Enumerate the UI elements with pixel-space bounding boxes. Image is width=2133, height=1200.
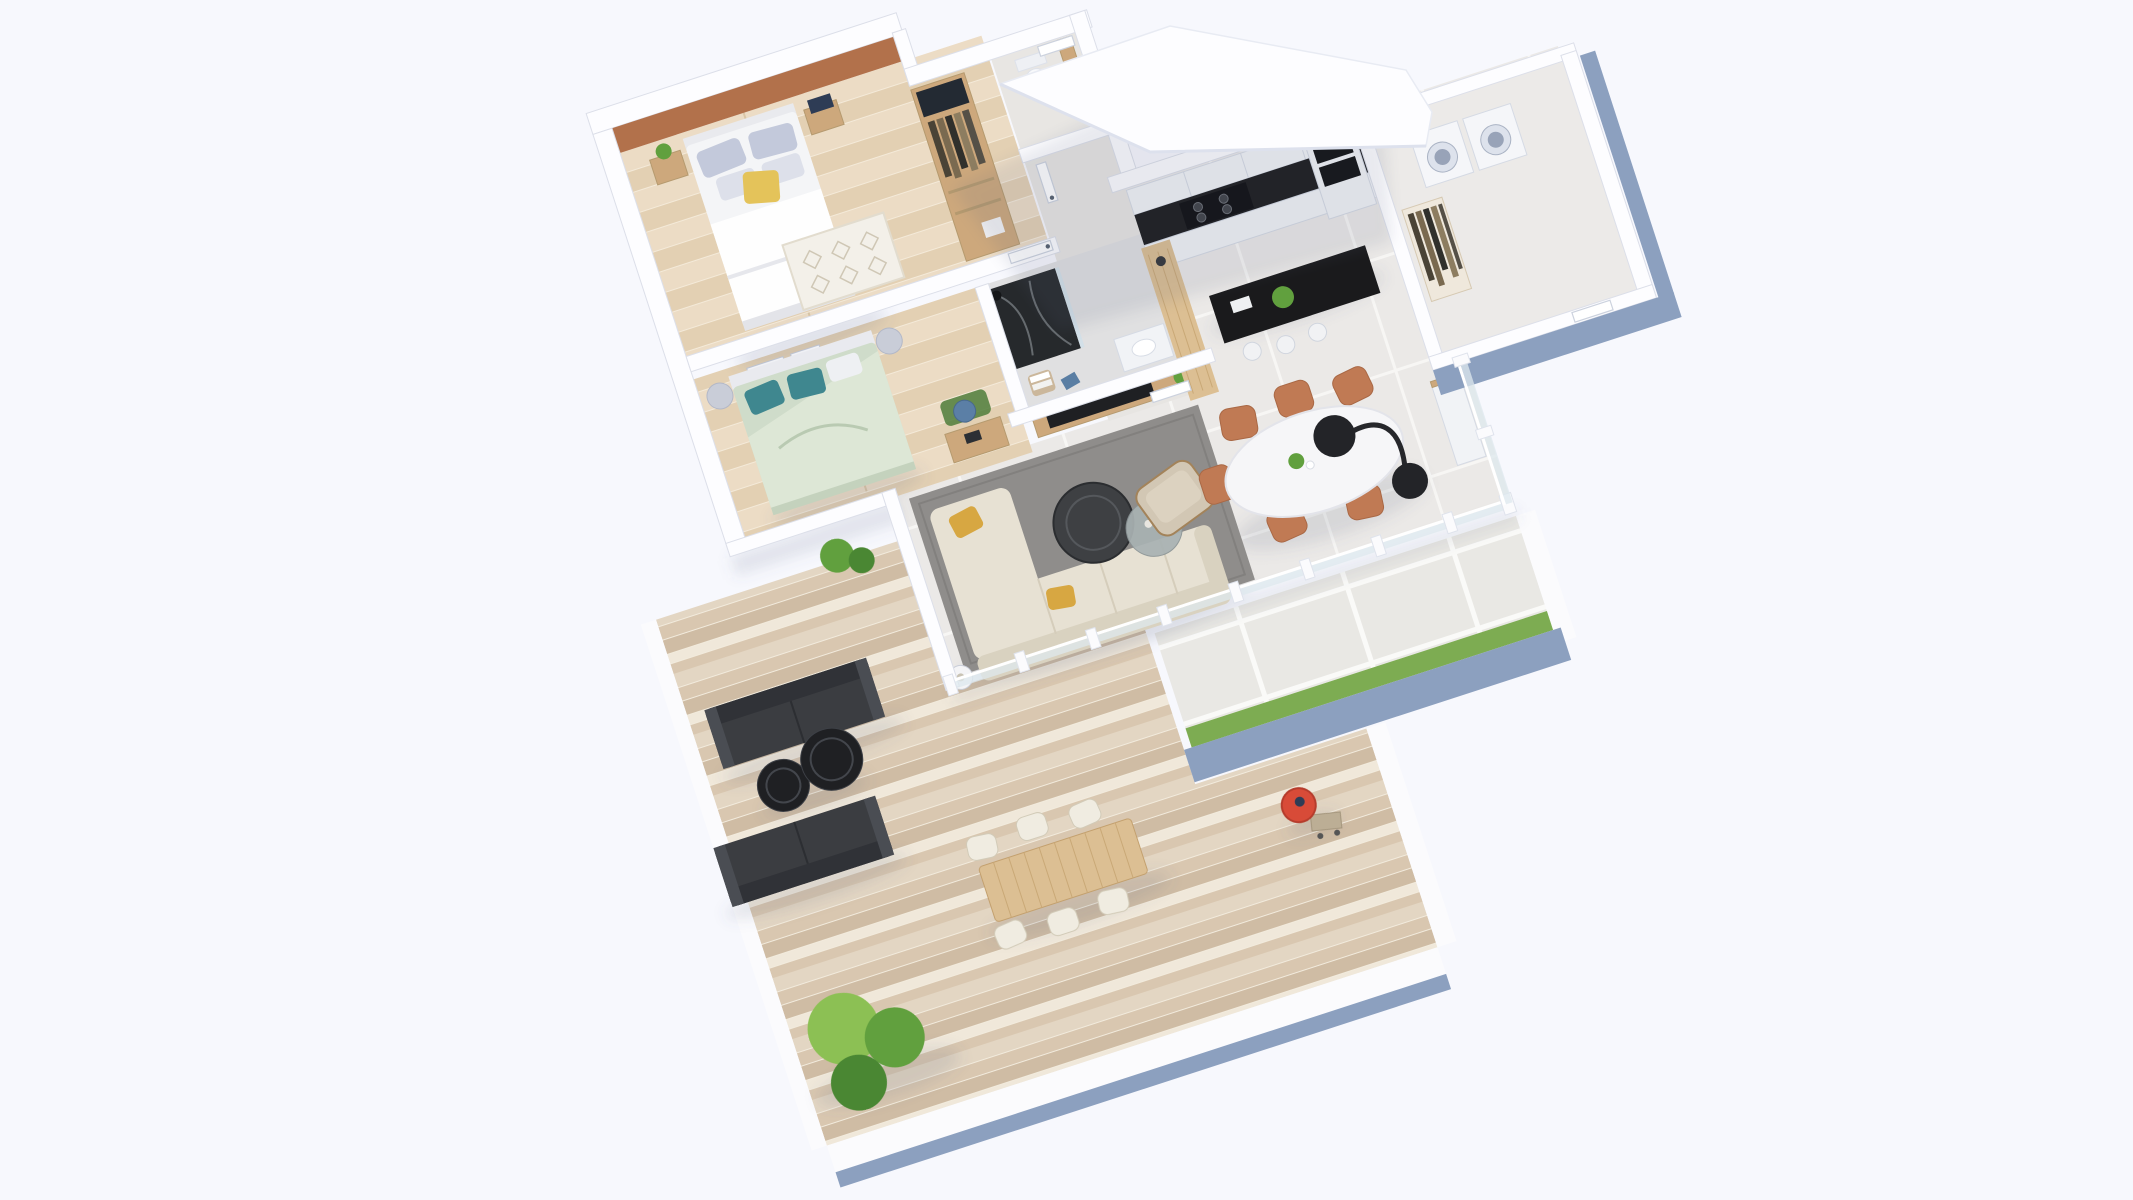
floor-plan-svg — [0, 0, 2133, 1200]
bed1-yellow-pillow — [742, 170, 780, 204]
floor-plan-stage — [0, 0, 2133, 1200]
grill-cart — [1310, 812, 1342, 831]
